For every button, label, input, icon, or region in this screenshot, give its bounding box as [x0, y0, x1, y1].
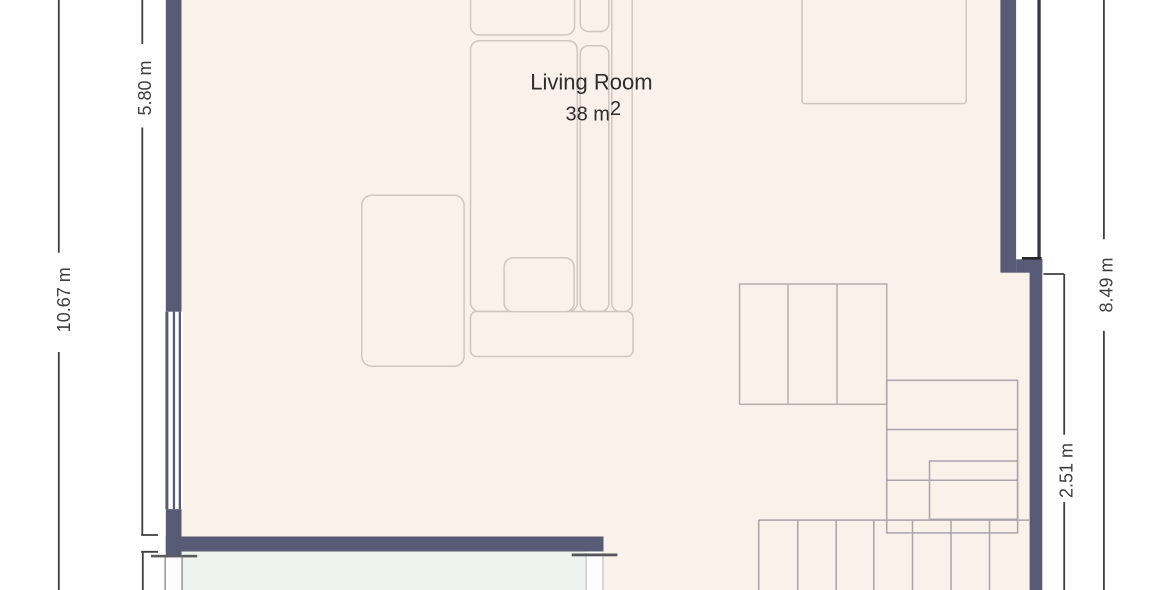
svg-text:Living Room: Living Room: [530, 70, 652, 95]
svg-text:8.49 m: 8.49 m: [1096, 257, 1116, 312]
svg-text:10.67 m: 10.67 m: [54, 267, 74, 332]
svg-text:5.80 m: 5.80 m: [135, 60, 155, 115]
svg-text:2.51 m: 2.51 m: [1057, 443, 1077, 498]
